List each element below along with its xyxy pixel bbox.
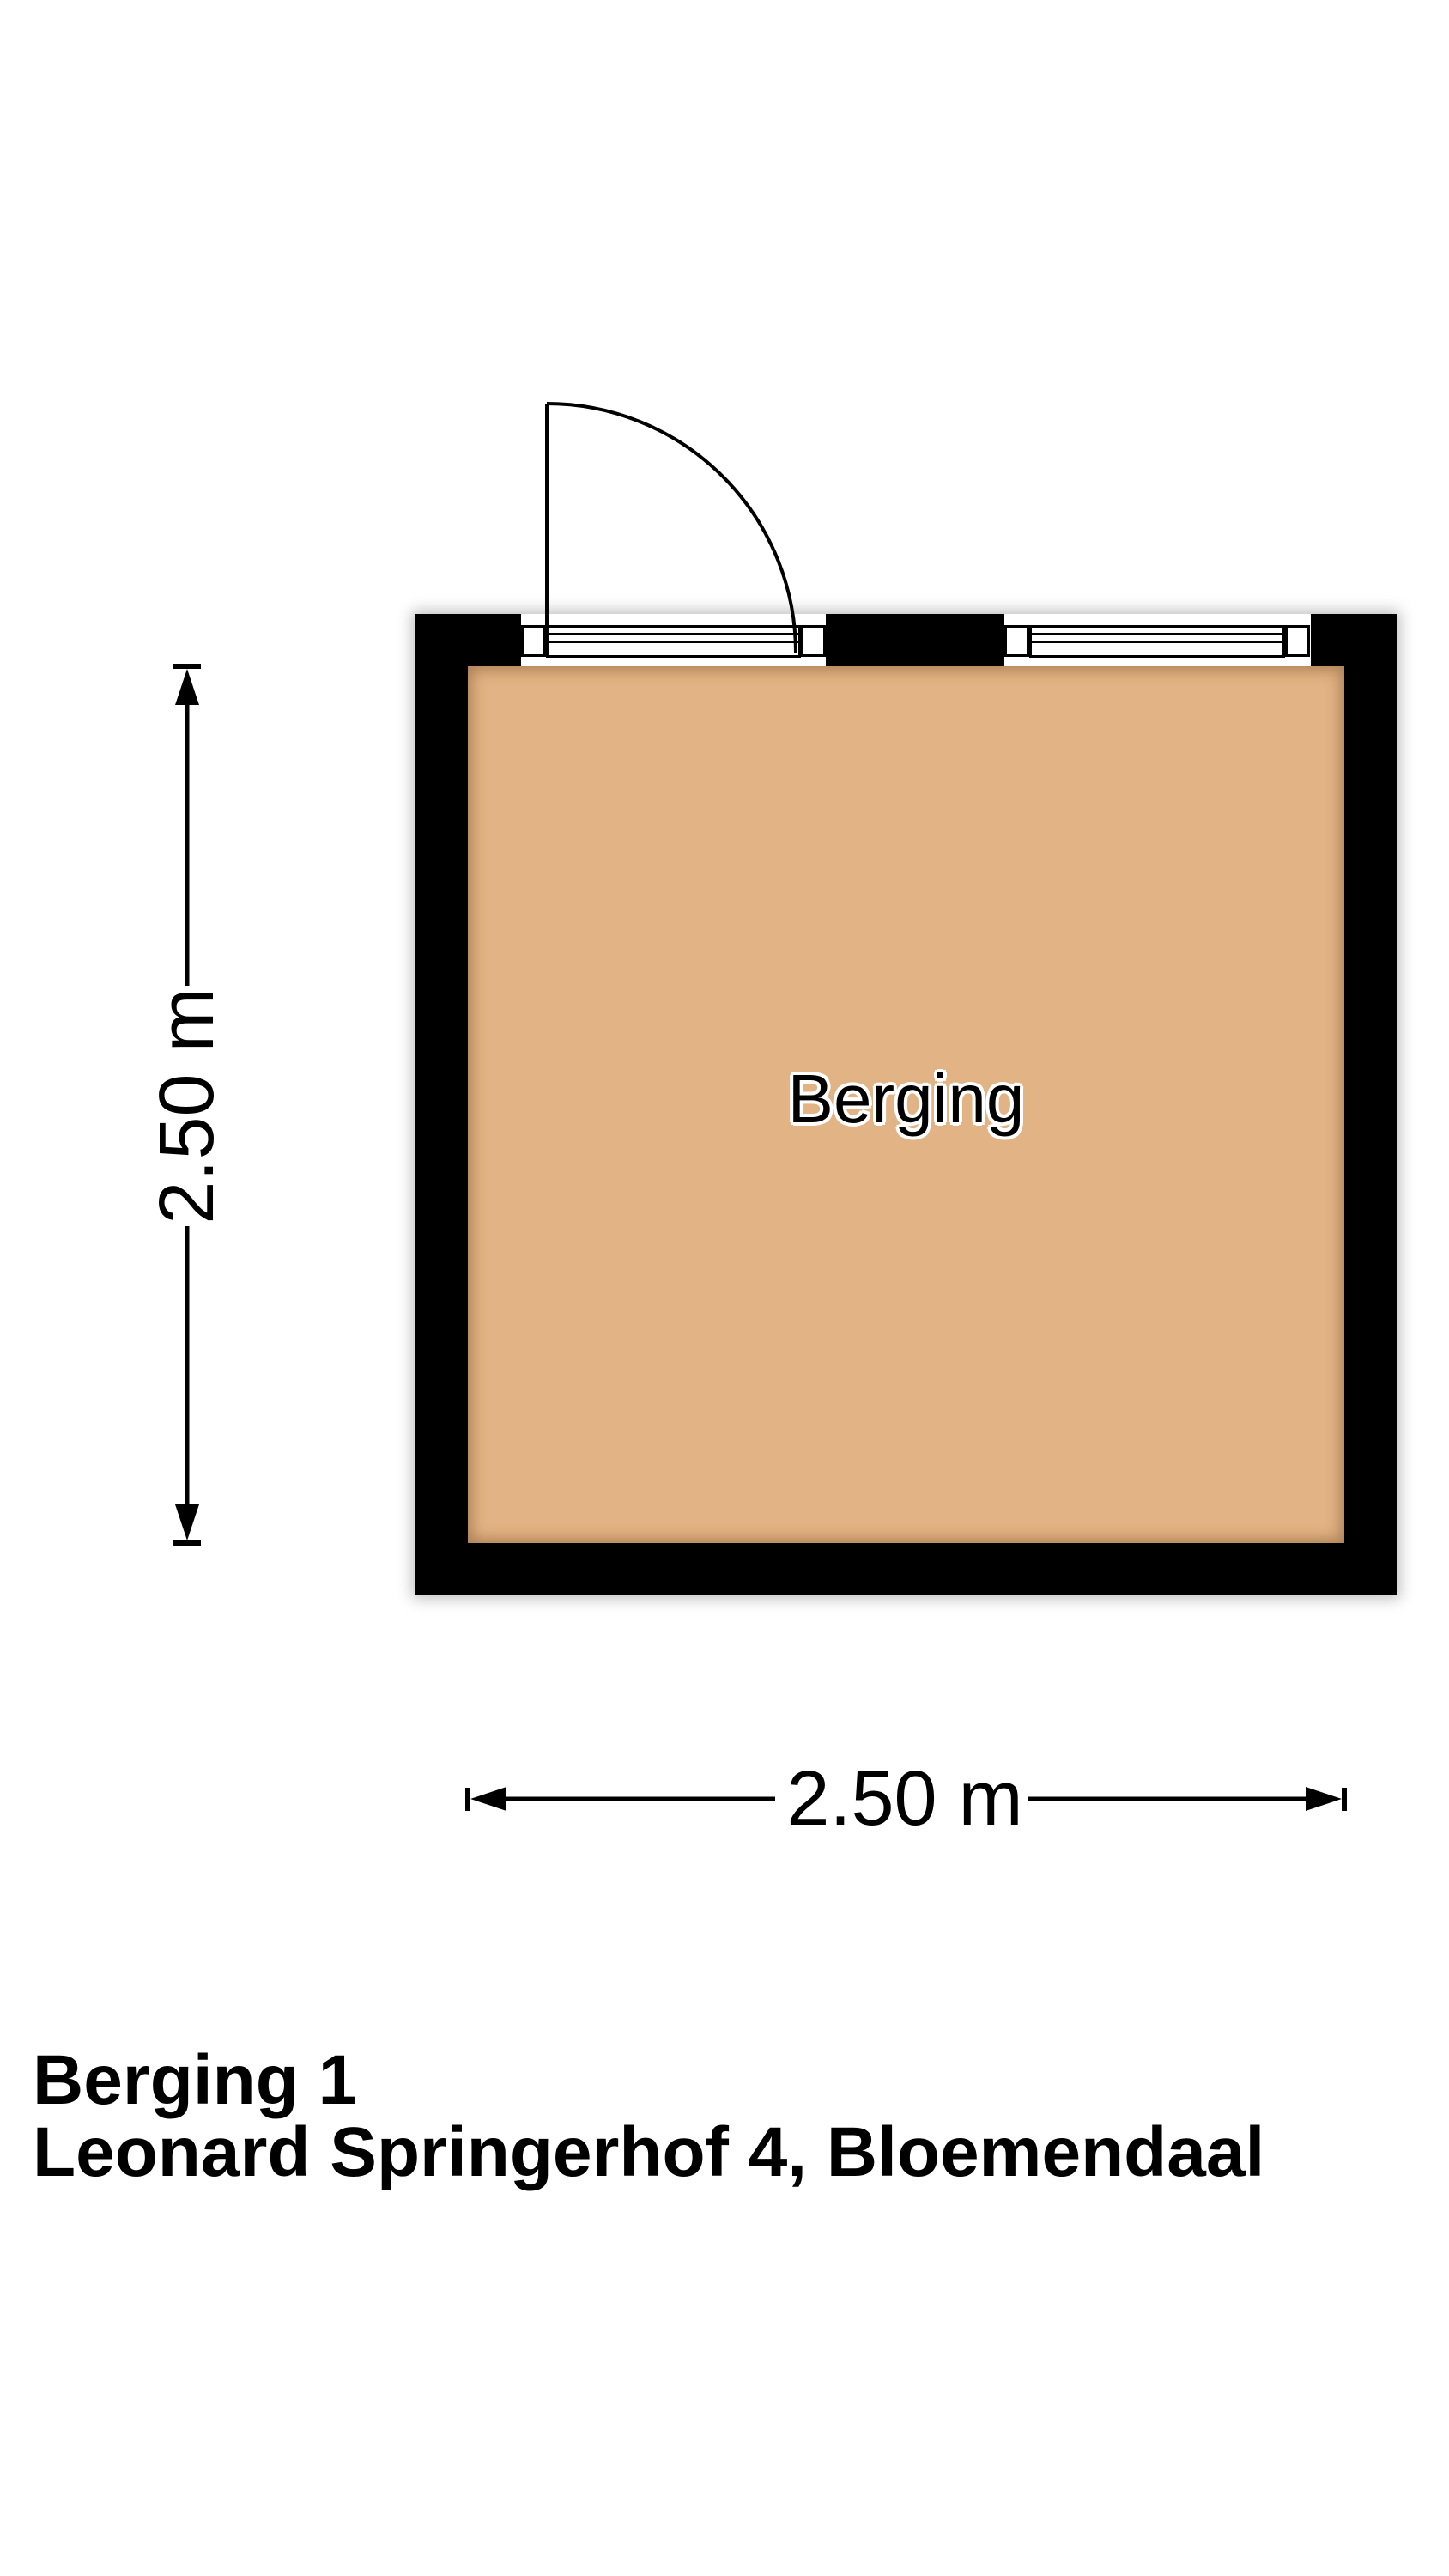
vertical-dim-arrow-down-icon bbox=[175, 1504, 199, 1540]
floorplan-page: Berging 2.50 m 2.50 m Berging 1 Leonard … bbox=[0, 0, 1449, 2576]
vertical-dimension-label: 2.50 m bbox=[149, 987, 226, 1224]
horizontal-dimension-label: 2.50 m bbox=[476, 1760, 1334, 1838]
plan-address: Leonard Springerhof 4, Bloemendaal bbox=[33, 2117, 1264, 2188]
vertical-dim-arrow-up-icon bbox=[175, 669, 199, 705]
plan-title: Berging 1 bbox=[33, 2045, 357, 2116]
door-swing-arc-icon bbox=[547, 404, 796, 653]
room-name-label: Berging bbox=[468, 1065, 1344, 1133]
